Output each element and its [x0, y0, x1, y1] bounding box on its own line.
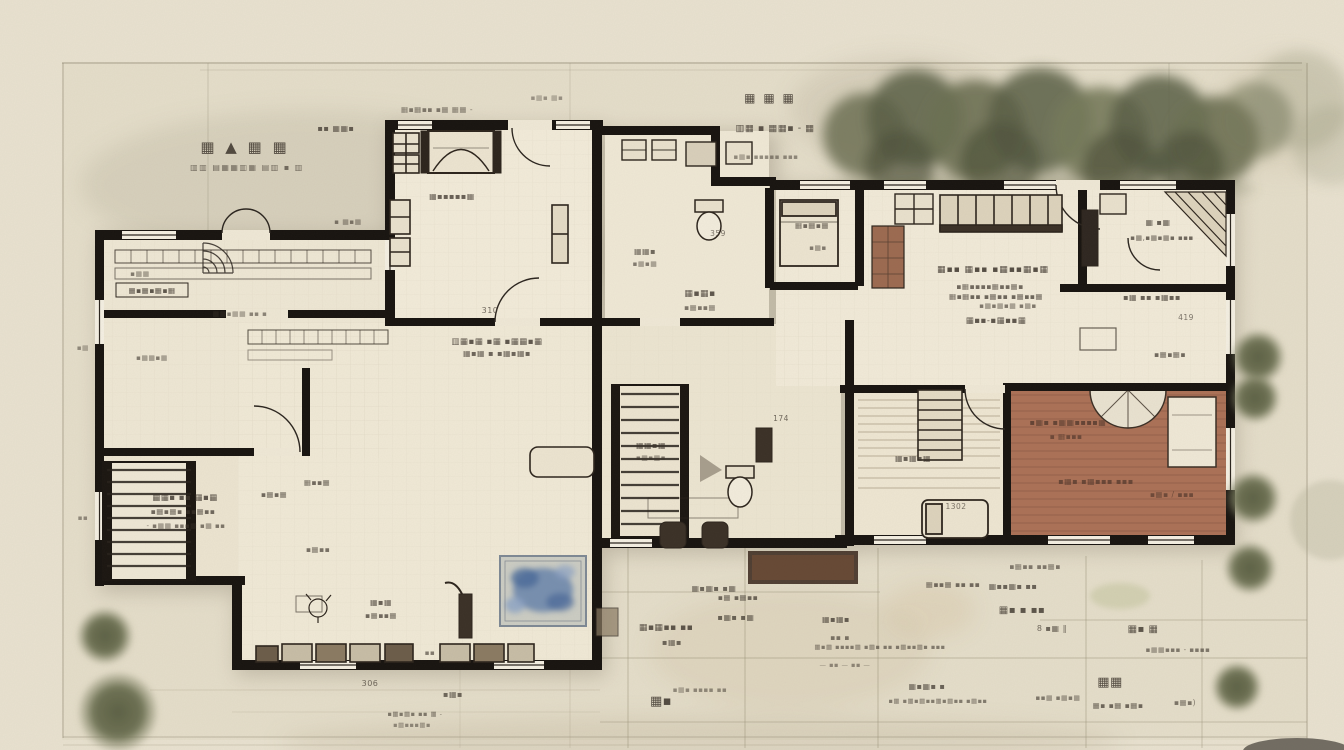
- floor-plan-drawing: ▦ ▲ ▦ ▦ ▥▥ ▤▦▦▥▦ ▤▥ ▪ ▥ ▪▪ ▦▦▪▦▪▦▪▪ ▪▦ ▦…: [0, 0, 1344, 750]
- paper-grain: [0, 0, 1344, 750]
- floor-plan-canvas: ▦ ▲ ▦ ▦ ▥▥ ▤▦▦▥▦ ▤▥ ▪ ▥ ▪▪ ▦▦▪▦▪▦▪▪ ▪▦ ▦…: [0, 0, 1344, 750]
